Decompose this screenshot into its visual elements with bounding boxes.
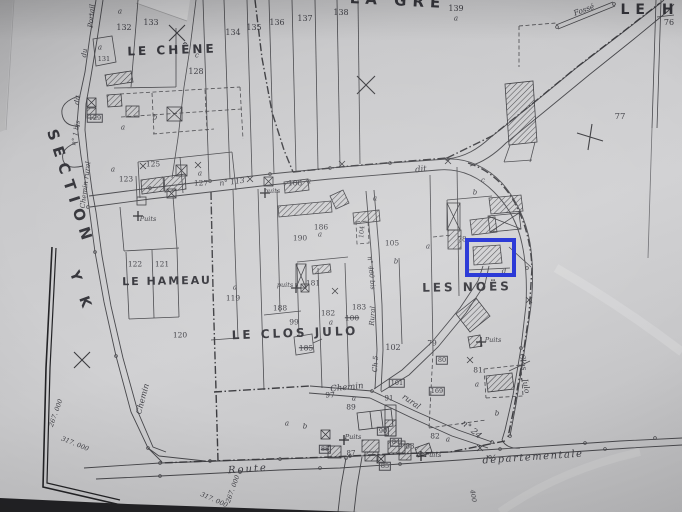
parcel-letter: a — [329, 320, 333, 327]
parcel-number: 129 — [87, 114, 103, 123]
parcel-letter: a — [426, 244, 430, 251]
highlight-selected-parcel — [465, 238, 516, 277]
parcel-letter: a — [318, 232, 322, 239]
parcel-number: 82 — [430, 432, 440, 440]
parcel-letter: a — [118, 9, 122, 16]
parcel-number: 122 — [128, 260, 142, 268]
parcel-number: 127 — [194, 179, 208, 187]
parcel-number: 88 — [319, 445, 331, 454]
road-name: du — [81, 48, 89, 58]
parcel-number: 185 — [299, 344, 313, 352]
parcel-number: 134 — [225, 29, 240, 37]
parcel-letter: a — [446, 437, 450, 444]
parcel-number: 182 — [321, 309, 335, 317]
well-label: puits — [277, 282, 293, 289]
road-name: dit — [415, 165, 427, 175]
parcel-number: 135 — [246, 24, 261, 32]
well-label: Puits — [485, 337, 502, 344]
parcel-letter: c — [195, 53, 199, 60]
parcel-number: 87 — [347, 451, 356, 458]
road-name-clos-julo: Julo — [521, 378, 531, 394]
grid-coordinate: 400 — [469, 489, 478, 502]
well-label: Puits — [140, 216, 157, 223]
parcel-letter: a — [285, 421, 289, 428]
parcel-number: 100 — [345, 314, 359, 322]
parcel-number: 89 — [346, 403, 356, 411]
parcel-letter: b — [473, 190, 477, 197]
parcel-number: 181 — [306, 279, 320, 287]
parcel-number: 139 — [448, 5, 463, 13]
parcel-number: 132 — [116, 24, 131, 32]
parcel-letter: a — [373, 196, 377, 203]
parcel-number: 99 — [289, 318, 299, 326]
parcel-number: 138 — [333, 9, 348, 17]
parcel-letter: a — [233, 285, 237, 292]
parcel-number: 84 — [390, 438, 402, 447]
place-name-les-noes: LES NOËS — [422, 280, 512, 294]
section-boundary — [160, 0, 660, 463]
cadastral-map-photo: LA GRELE HLE CHÊNELE HAMEAULE CLOS JULOL… — [0, 0, 682, 512]
parcel-number: 131 — [98, 56, 110, 63]
parcel-letter: b — [303, 424, 307, 431]
parcel-letter: a — [307, 179, 311, 186]
parcel-number: 125 — [146, 160, 160, 168]
well-label: Puits — [345, 434, 362, 441]
parcel-number: 128 — [188, 68, 203, 76]
parcel-number: 97 — [325, 391, 335, 399]
parcel-number: 136 — [269, 19, 284, 27]
place-name-le-chene: LE CHÊNE — [127, 42, 217, 57]
well-label: Puits — [425, 452, 442, 459]
table-edge-shadow — [0, 498, 358, 512]
parcel-letter: b — [495, 411, 499, 418]
parcel-number: 91 — [385, 396, 394, 403]
parcel-number: 120 — [173, 331, 187, 339]
parcel-number: 183 — [352, 303, 366, 311]
parcel-number: 105 — [385, 239, 399, 247]
well-label: puits — [264, 188, 280, 195]
parcel-number: 169 — [429, 387, 445, 396]
parcel-number: 188 — [273, 304, 287, 312]
parcel-number: 81 — [473, 366, 483, 374]
parcel-letter: a — [121, 125, 125, 132]
parcel-letter: b — [153, 115, 157, 122]
road-name-clos-julo: Clos — [518, 353, 528, 371]
place-name-le-h: LE H — [620, 3, 679, 17]
parcel-number: 190 — [293, 234, 307, 242]
parcel-number: 79 — [427, 339, 437, 347]
parcel-number: 85 — [379, 462, 391, 471]
parcel-number: 133 — [143, 19, 158, 27]
place-name-le-hameau: LE HAMEAU — [122, 275, 212, 288]
parcel-letter: a — [111, 167, 115, 174]
parcel-number: 76 — [664, 19, 674, 27]
parcel-number: 80 — [436, 356, 448, 365]
parcel-letter: a — [454, 16, 458, 23]
parcel-number: 106 — [288, 179, 302, 187]
map-linework — [0, 0, 682, 512]
survey-points — [87, 3, 657, 478]
parcel-number: 77 — [615, 113, 626, 122]
parcel-number: 101 — [389, 379, 405, 388]
parcel-number: 104 — [358, 225, 366, 238]
parcel-number: 119 — [226, 294, 240, 302]
parcel-letter: a — [475, 382, 479, 389]
parcel-number: 137 — [297, 15, 312, 23]
parcel-number: 123 — [119, 175, 133, 183]
parcel-letter: b — [394, 259, 398, 266]
road-name: Rural — [369, 306, 377, 326]
parcel-letter: c — [481, 178, 485, 185]
parcel-number: 121 — [155, 260, 169, 268]
parcel-letter: a — [198, 171, 202, 178]
parcel-number: 90 — [377, 427, 389, 436]
parcel-number: 83 — [406, 444, 415, 451]
parcel-number: 102 — [385, 344, 400, 352]
road-name: Ch 5 — [372, 356, 380, 373]
parcel-letter: a — [98, 45, 102, 52]
